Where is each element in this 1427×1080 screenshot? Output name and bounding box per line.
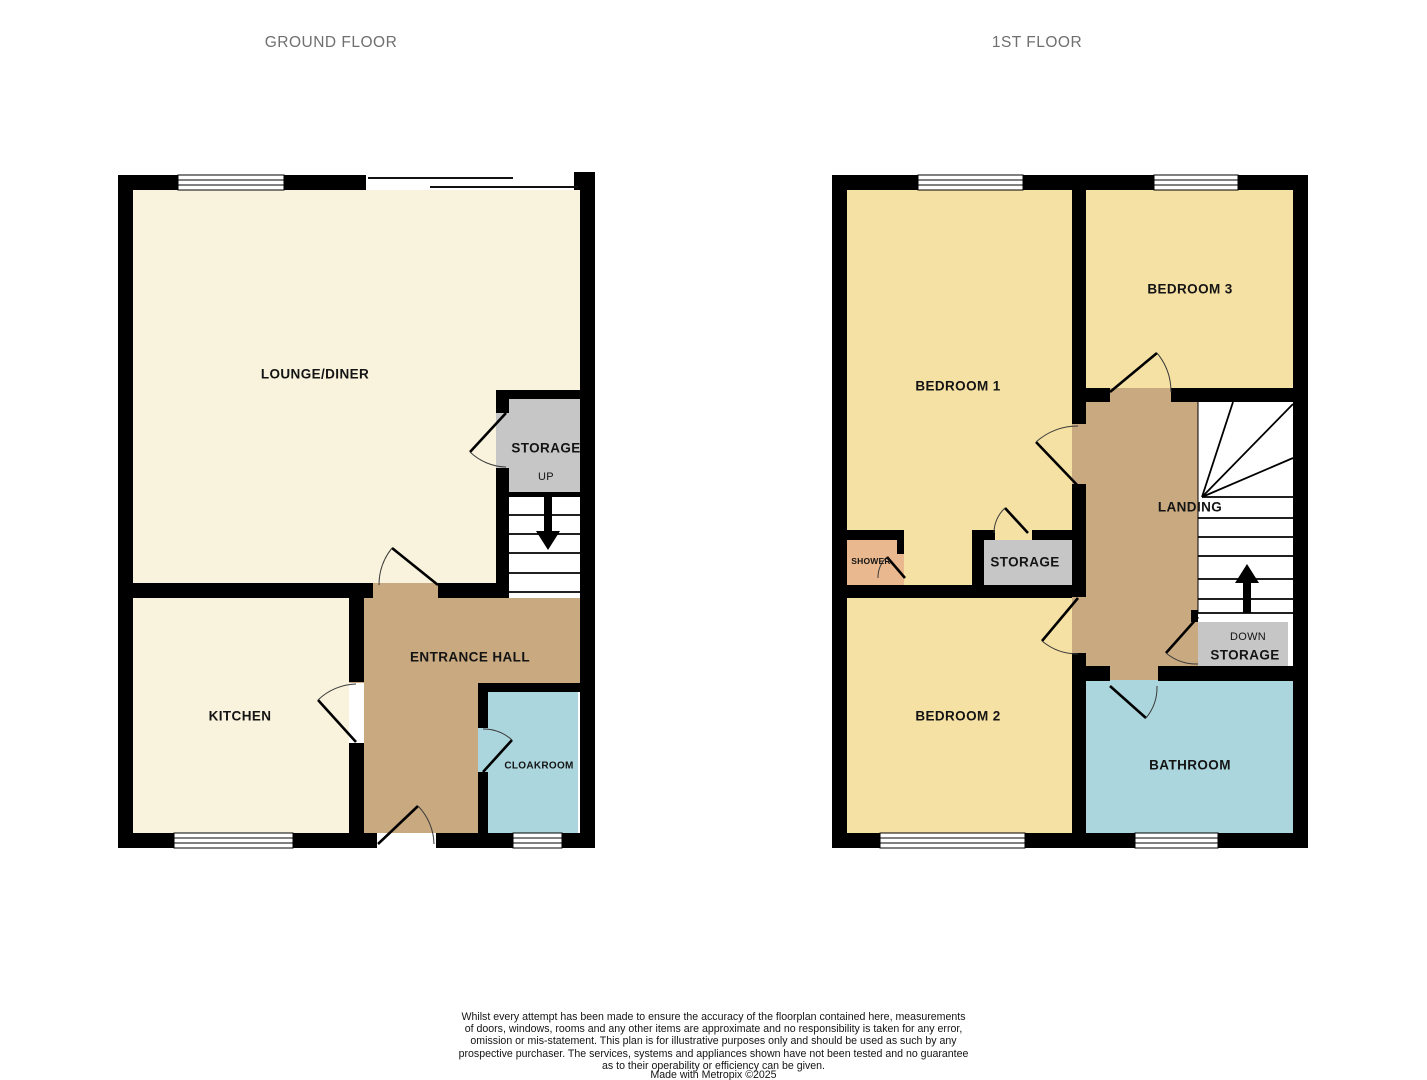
lounge-diner-label: LOUNGE/DINER — [261, 367, 369, 382]
disclaimer-text: Whilst every attempt has been made to en… — [444, 1011, 984, 1072]
ground-floor-plan — [118, 172, 595, 848]
bathroom-label: BATHROOM — [1149, 758, 1231, 773]
stairs-up-label: UP — [538, 471, 554, 483]
ground-floor-title: GROUND FLOOR — [265, 34, 398, 52]
ground-staircase — [509, 497, 580, 598]
ground-storage-label: STORAGE — [511, 441, 580, 456]
metropix-credit: Made with Metropix ©2025 — [650, 1069, 776, 1080]
down-storage-label: STORAGE — [1210, 648, 1279, 663]
kitchen-label: KITCHEN — [209, 709, 272, 724]
first-floor-plan — [832, 175, 1308, 848]
floorplan-drawing — [0, 0, 1427, 1080]
landing-label: LANDING — [1158, 500, 1222, 515]
bedroom1-label: BEDROOM 1 — [915, 379, 1000, 394]
bedroom3-label: BEDROOM 3 — [1147, 282, 1232, 297]
cloakroom-label: CLOAKROOM — [504, 761, 573, 772]
patio-sliding-door — [368, 178, 578, 187]
entrance-hall-label: ENTRANCE HALL — [410, 650, 530, 665]
stairs-down-label: DOWN — [1230, 631, 1266, 643]
bedroom2-label: BEDROOM 2 — [915, 709, 1000, 724]
first-floor-title: 1ST FLOOR — [992, 34, 1082, 52]
mid-storage-label: STORAGE — [990, 555, 1059, 570]
shower-label: SHOWER — [851, 556, 890, 566]
floorplan-canvas: GROUND FLOOR 1ST FLOOR LOUNGE/DINER STOR… — [0, 0, 1427, 1080]
